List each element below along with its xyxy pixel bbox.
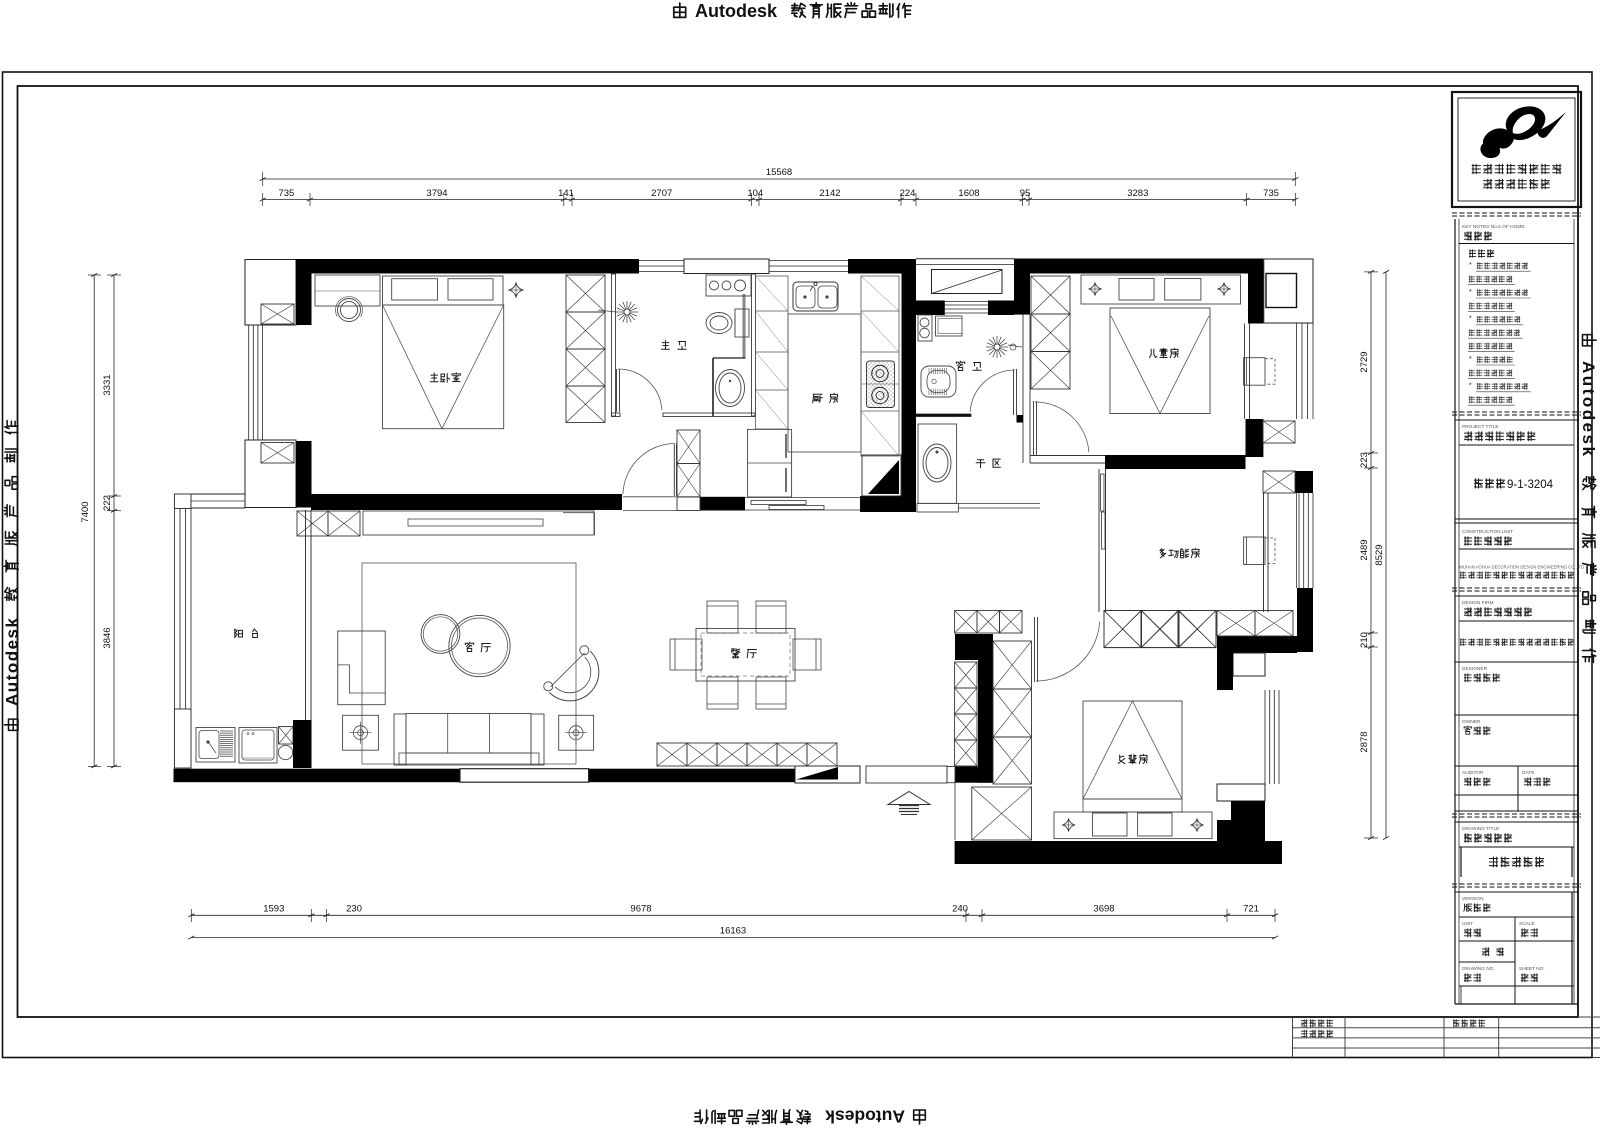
svg-text:1608: 1608 — [958, 188, 979, 199]
svg-text:KEY NOTES No.5 OF HOME: KEY NOTES No.5 OF HOME — [1462, 224, 1525, 230]
svg-text:735: 735 — [1263, 188, 1279, 199]
svg-text:OWNER: OWNER — [1462, 719, 1481, 725]
svg-text:735: 735 — [278, 188, 294, 199]
svg-text:9678: 9678 — [630, 904, 651, 915]
svg-text:7400: 7400 — [80, 501, 91, 522]
svg-text:DRAWING TITLE: DRAWING TITLE — [1462, 826, 1499, 832]
svg-text:DRAWING NO.: DRAWING NO. — [1462, 966, 1495, 972]
svg-text:Autodesk: Autodesk — [1579, 361, 1598, 458]
svg-text:16163: 16163 — [720, 926, 746, 937]
svg-text:CONSTRUCTION UNIT: CONSTRUCTION UNIT — [1462, 529, 1513, 535]
svg-text:*: * — [1469, 289, 1472, 296]
svg-text:*: * — [1469, 262, 1472, 269]
svg-text:2878: 2878 — [1359, 731, 1370, 752]
svg-text:104: 104 — [747, 188, 763, 199]
svg-text:*: * — [1469, 316, 1472, 323]
svg-text:721: 721 — [1243, 904, 1259, 915]
svg-text:3283: 3283 — [1127, 188, 1148, 199]
svg-text:230: 230 — [346, 904, 362, 915]
svg-text:95: 95 — [1020, 188, 1031, 199]
svg-text:3846: 3846 — [102, 627, 113, 648]
svg-text:WUHAN AOHUA DECORATION DESIGN: WUHAN AOHUA DECORATION DESIGN ENGINEERIN… — [1459, 565, 1584, 570]
svg-text:2142: 2142 — [819, 188, 840, 199]
svg-text:3698: 3698 — [1093, 904, 1114, 915]
svg-text:223: 223 — [1359, 452, 1370, 468]
svg-text:Autodesk: Autodesk — [3, 617, 22, 706]
svg-text:*: * — [1469, 383, 1472, 390]
svg-text:3331: 3331 — [102, 374, 113, 395]
svg-text:2489: 2489 — [1359, 539, 1370, 560]
svg-text:15568: 15568 — [766, 167, 792, 178]
svg-text:240: 240 — [952, 904, 968, 915]
svg-text:222: 222 — [102, 495, 113, 511]
svg-text:Autodesk: Autodesk — [825, 1107, 905, 1127]
svg-text:2707: 2707 — [651, 188, 672, 199]
svg-text:210: 210 — [1359, 632, 1370, 648]
svg-text:DESIGN FIRM: DESIGN FIRM — [1462, 600, 1493, 606]
svg-text:DATE: DATE — [1522, 770, 1534, 776]
svg-text:2729: 2729 — [1359, 351, 1370, 372]
svg-text:DESIGNER: DESIGNER — [1462, 666, 1488, 672]
svg-text:SCALE: SCALE — [1519, 921, 1535, 927]
svg-text:9-1-3204: 9-1-3204 — [1507, 479, 1554, 491]
svg-text:*: * — [1469, 356, 1472, 363]
svg-text:Autodesk: Autodesk — [695, 1, 778, 21]
svg-text:PROJECT TITLE: PROJECT TITLE — [1462, 424, 1499, 430]
svg-text:UNIT: UNIT — [1462, 921, 1473, 927]
svg-text:SHEET NO.: SHEET NO. — [1519, 966, 1545, 972]
svg-text:1593: 1593 — [263, 904, 284, 915]
svg-text:3794: 3794 — [426, 188, 447, 199]
svg-text:224: 224 — [900, 188, 916, 199]
svg-text:VERSION: VERSION — [1462, 896, 1484, 902]
svg-text:8529: 8529 — [1374, 544, 1385, 565]
svg-text:141: 141 — [558, 188, 574, 199]
svg-text:AUDITOR: AUDITOR — [1462, 770, 1484, 776]
